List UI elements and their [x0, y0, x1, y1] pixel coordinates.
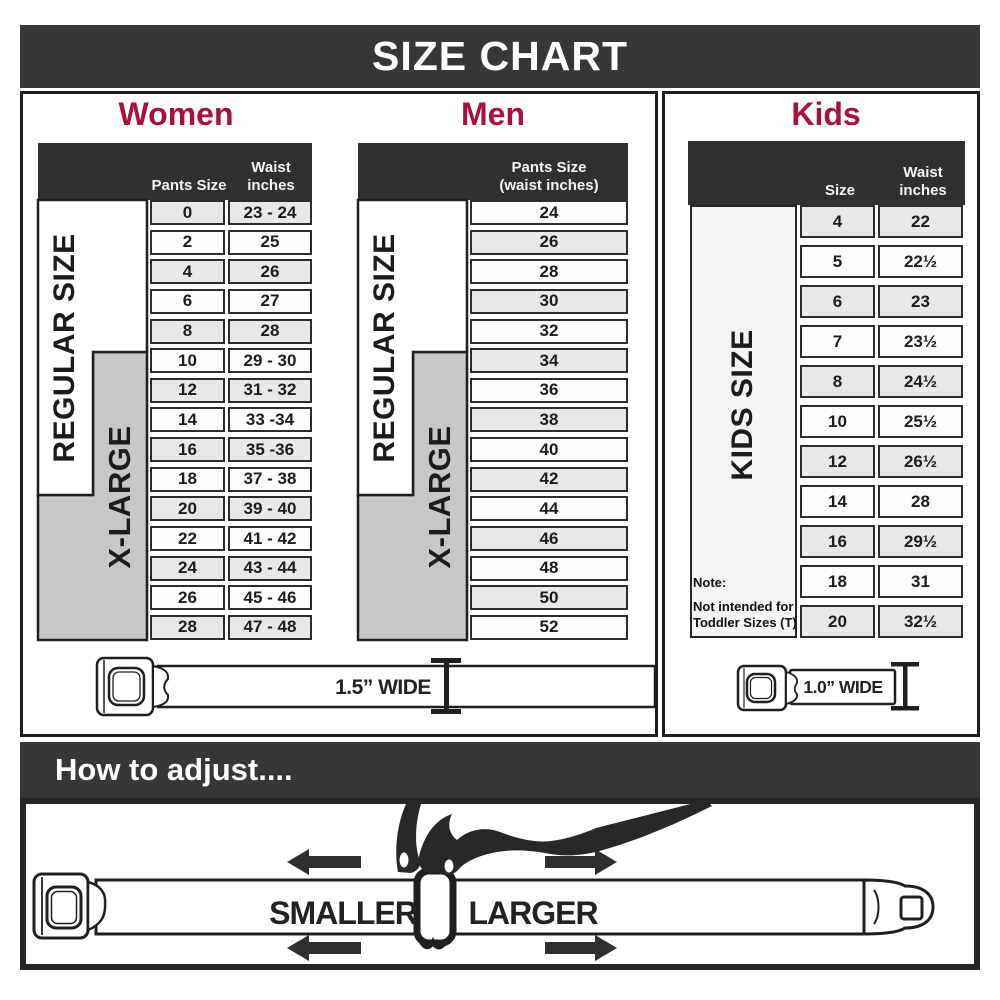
men-pants-size-cell: 46: [470, 526, 628, 551]
kids-heading: Kids: [716, 96, 936, 133]
men-pants-size-cell: 32: [470, 319, 628, 344]
kids-waist-cell: 28: [878, 485, 963, 518]
women-col-waist: Waist inches: [230, 159, 312, 195]
men-pants-size-cell: 26: [470, 230, 628, 255]
women-pants-size-cell: 26: [150, 585, 225, 610]
adjust-illustration: SMALLER LARGER: [26, 803, 974, 963]
men-table-row: 26: [470, 230, 628, 255]
men-pants-size-cell: 52: [470, 615, 628, 640]
women-pants-size-cell: 16: [150, 437, 225, 462]
women-heading: Women: [66, 96, 286, 133]
men-pants-size-cell: 34: [470, 348, 628, 373]
men-rows: 24 26 28 30 32 34 36: [470, 200, 628, 640]
women-rows: 0 23 - 24 2 25 4 26 6 27 8 28: [150, 200, 312, 640]
men-table-row: 52: [470, 615, 628, 640]
men-table-row: 40: [470, 437, 628, 462]
women-table-row: 24 43 - 44: [150, 556, 312, 581]
adjust-belt-buckle: [34, 874, 105, 938]
women-pants-size-cell: 8: [150, 319, 225, 344]
women-pants-size-cell: 24: [150, 556, 225, 581]
women-pants-size-cell: 10: [150, 348, 225, 373]
women-waist-cell: 47 - 48: [228, 615, 312, 640]
women-pants-size-cell: 6: [150, 289, 225, 314]
men-table-row: 34: [470, 348, 628, 373]
kids-belt-illustration: 1.0” WIDE: [730, 658, 925, 713]
women-pants-size-cell: 14: [150, 407, 225, 432]
women-table-row: 22 41 - 42: [150, 526, 312, 551]
men-regular-label: REGULAR SIZE: [368, 233, 402, 462]
kids-table-row: 8 24½: [800, 365, 963, 398]
kids-size-cell: 20: [800, 605, 875, 638]
women-pants-size-cell: 28: [150, 615, 225, 640]
women-waist-cell: 23 - 24: [228, 200, 312, 225]
kids-buckle-window-inner: [751, 678, 772, 699]
kids-size-cell: 10: [800, 405, 875, 438]
men-table-header: Pants Size (waist inches): [358, 143, 628, 200]
men-pants-size-cell: 50: [470, 585, 628, 610]
kids-size-cell: 7: [800, 325, 875, 358]
kids-table-row: 4 22: [800, 205, 963, 238]
adjust-belt-tip: [864, 880, 933, 934]
men-pants-size-cell: 36: [470, 378, 628, 403]
kids-belt-caption: 1.0” WIDE: [803, 677, 882, 697]
women-table-row: 14 33 -34: [150, 407, 312, 432]
women-table-row: 6 27: [150, 289, 312, 314]
kids-size-cell: 16: [800, 525, 875, 558]
kids-table-row: 5 22½: [800, 245, 963, 278]
kids-waist-cell: 29½: [878, 525, 963, 558]
size-chart-page: SIZE CHART Women Men Kids Pants Size Wai…: [0, 0, 1000, 1000]
women-waist-cell: 43 - 44: [228, 556, 312, 581]
kids-table-header: Size Waist inches: [688, 141, 965, 205]
men-table-row: 30: [470, 289, 628, 314]
kids-waist-cell: 26½: [878, 445, 963, 478]
men-heading: Men: [383, 96, 603, 133]
women-waist-cell: 41 - 42: [228, 526, 312, 551]
women-table-row: 18 37 - 38: [150, 467, 312, 492]
men-table-row: 24: [470, 200, 628, 225]
men-pants-size-cell: 42: [470, 467, 628, 492]
women-table-row: 12 31 - 32: [150, 378, 312, 403]
kids-table-row: 12 26½: [800, 445, 963, 478]
kids-table-row: 16 29½: [800, 525, 963, 558]
kids-waist-cell: 31: [878, 565, 963, 598]
women-col-pants-size: Pants Size: [150, 177, 228, 195]
women-table-row: 16 35 -36: [150, 437, 312, 462]
kids-size-cell: 4: [800, 205, 875, 238]
kids-waist-cell: 25½: [878, 405, 963, 438]
kids-table-row: 6 23: [800, 285, 963, 318]
men-table-row: 46: [470, 526, 628, 551]
women-waist-cell: 25: [228, 230, 312, 255]
women-waist-cell: 45 - 46: [228, 585, 312, 610]
kids-table-row: 18 31: [800, 565, 963, 598]
men-pants-size-cell: 28: [470, 259, 628, 284]
kids-table-row: 20 32½: [800, 605, 963, 638]
women-table-row: 2 25: [150, 230, 312, 255]
men-pants-size-cell: 24: [470, 200, 628, 225]
women-pants-size-cell: 20: [150, 496, 225, 521]
women-regular-label: REGULAR SIZE: [48, 233, 82, 462]
adult-buckle-window-inner: [113, 672, 140, 701]
men-table-row: 50: [470, 585, 628, 610]
women-table-row: 0 23 - 24: [150, 200, 312, 225]
adult-belt-illustration: 1.5” WIDE: [88, 648, 663, 720]
kids-table-row: 14 28: [800, 485, 963, 518]
men-pants-size-cell: 48: [470, 556, 628, 581]
women-waist-cell: 39 - 40: [228, 496, 312, 521]
kids-waist-cell: 23: [878, 285, 963, 318]
kids-size-label: KIDS SIZE: [726, 329, 760, 480]
men-table-row: 38: [470, 407, 628, 432]
kids-size-cell: 8: [800, 365, 875, 398]
kids-waist-cell: 23½: [878, 325, 963, 358]
women-waist-cell: 35 -36: [228, 437, 312, 462]
adjust-slider: [417, 871, 453, 947]
women-table-row: 8 28: [150, 319, 312, 344]
women-waist-cell: 29 - 30: [228, 348, 312, 373]
kids-waist-cell: 22: [878, 205, 963, 238]
men-xlarge-label: X-LARGE: [422, 426, 458, 569]
larger-label: LARGER: [468, 895, 598, 931]
women-waist-cell: 28: [228, 319, 312, 344]
adult-belt-caption: 1.5” WIDE: [335, 676, 431, 699]
women-table-row: 4 26: [150, 259, 312, 284]
women-waist-cell: 26: [228, 259, 312, 284]
women-pants-size-cell: 2: [150, 230, 225, 255]
women-pants-size-cell: 22: [150, 526, 225, 551]
women-table-row: 10 29 - 30: [150, 348, 312, 373]
kids-table-row: 10 25½: [800, 405, 963, 438]
page-title: SIZE CHART: [20, 25, 980, 88]
women-waist-cell: 33 -34: [228, 407, 312, 432]
kids-buckle-latch: [786, 672, 797, 704]
kids-waist-cell: 32½: [878, 605, 963, 638]
women-waist-cell: 27: [228, 289, 312, 314]
kids-rows: 4 22 5 22½ 6 23 7 23½ 8 24½: [800, 205, 963, 638]
men-col-pants-size: Pants Size (waist inches): [470, 159, 628, 195]
kids-waist-cell: 22½: [878, 245, 963, 278]
women-table-row: 26 45 - 46: [150, 585, 312, 610]
kids-col-size: Size: [800, 182, 880, 200]
kids-table-row: 7 23½: [800, 325, 963, 358]
women-pants-size-cell: 12: [150, 378, 225, 403]
women-pants-size-cell: 0: [150, 200, 225, 225]
women-pants-size-cell: 18: [150, 467, 225, 492]
kids-waist-cell: 24½: [878, 365, 963, 398]
kids-size-cell: 6: [800, 285, 875, 318]
kids-size-cell: 14: [800, 485, 875, 518]
women-waist-cell: 37 - 38: [228, 467, 312, 492]
men-table-row: 28: [470, 259, 628, 284]
women-xlarge-label: X-LARGE: [102, 426, 138, 569]
women-table-row: 20 39 - 40: [150, 496, 312, 521]
men-pants-size-cell: 44: [470, 496, 628, 521]
kids-col-waist: Waist inches: [882, 164, 964, 200]
kids-size-cell: 12: [800, 445, 875, 478]
men-table-row: 48: [470, 556, 628, 581]
kids-size-cell: 5: [800, 245, 875, 278]
smaller-label: SMALLER: [269, 895, 418, 931]
kids-size-cell: 18: [800, 565, 875, 598]
women-pants-size-cell: 4: [150, 259, 225, 284]
men-table-row: 42: [470, 467, 628, 492]
women-table-header: Pants Size Waist inches: [38, 143, 312, 200]
women-table-row: 28 47 - 48: [150, 615, 312, 640]
men-table-row: 44: [470, 496, 628, 521]
men-table-row: 32: [470, 319, 628, 344]
adjust-heading: How to adjust....: [20, 742, 980, 798]
men-pants-size-cell: 38: [470, 407, 628, 432]
men-table-row: 36: [470, 378, 628, 403]
men-pants-size-cell: 40: [470, 437, 628, 462]
men-pants-size-cell: 30: [470, 289, 628, 314]
women-waist-cell: 31 - 32: [228, 378, 312, 403]
